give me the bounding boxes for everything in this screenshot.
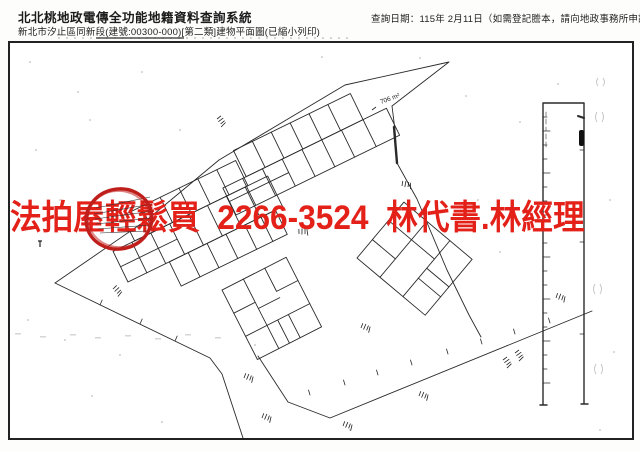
watermark-text: 法拍屋輕鬆買 2266-3524 林代書.林經理 [10, 197, 585, 239]
plan-frame [9, 42, 633, 439]
